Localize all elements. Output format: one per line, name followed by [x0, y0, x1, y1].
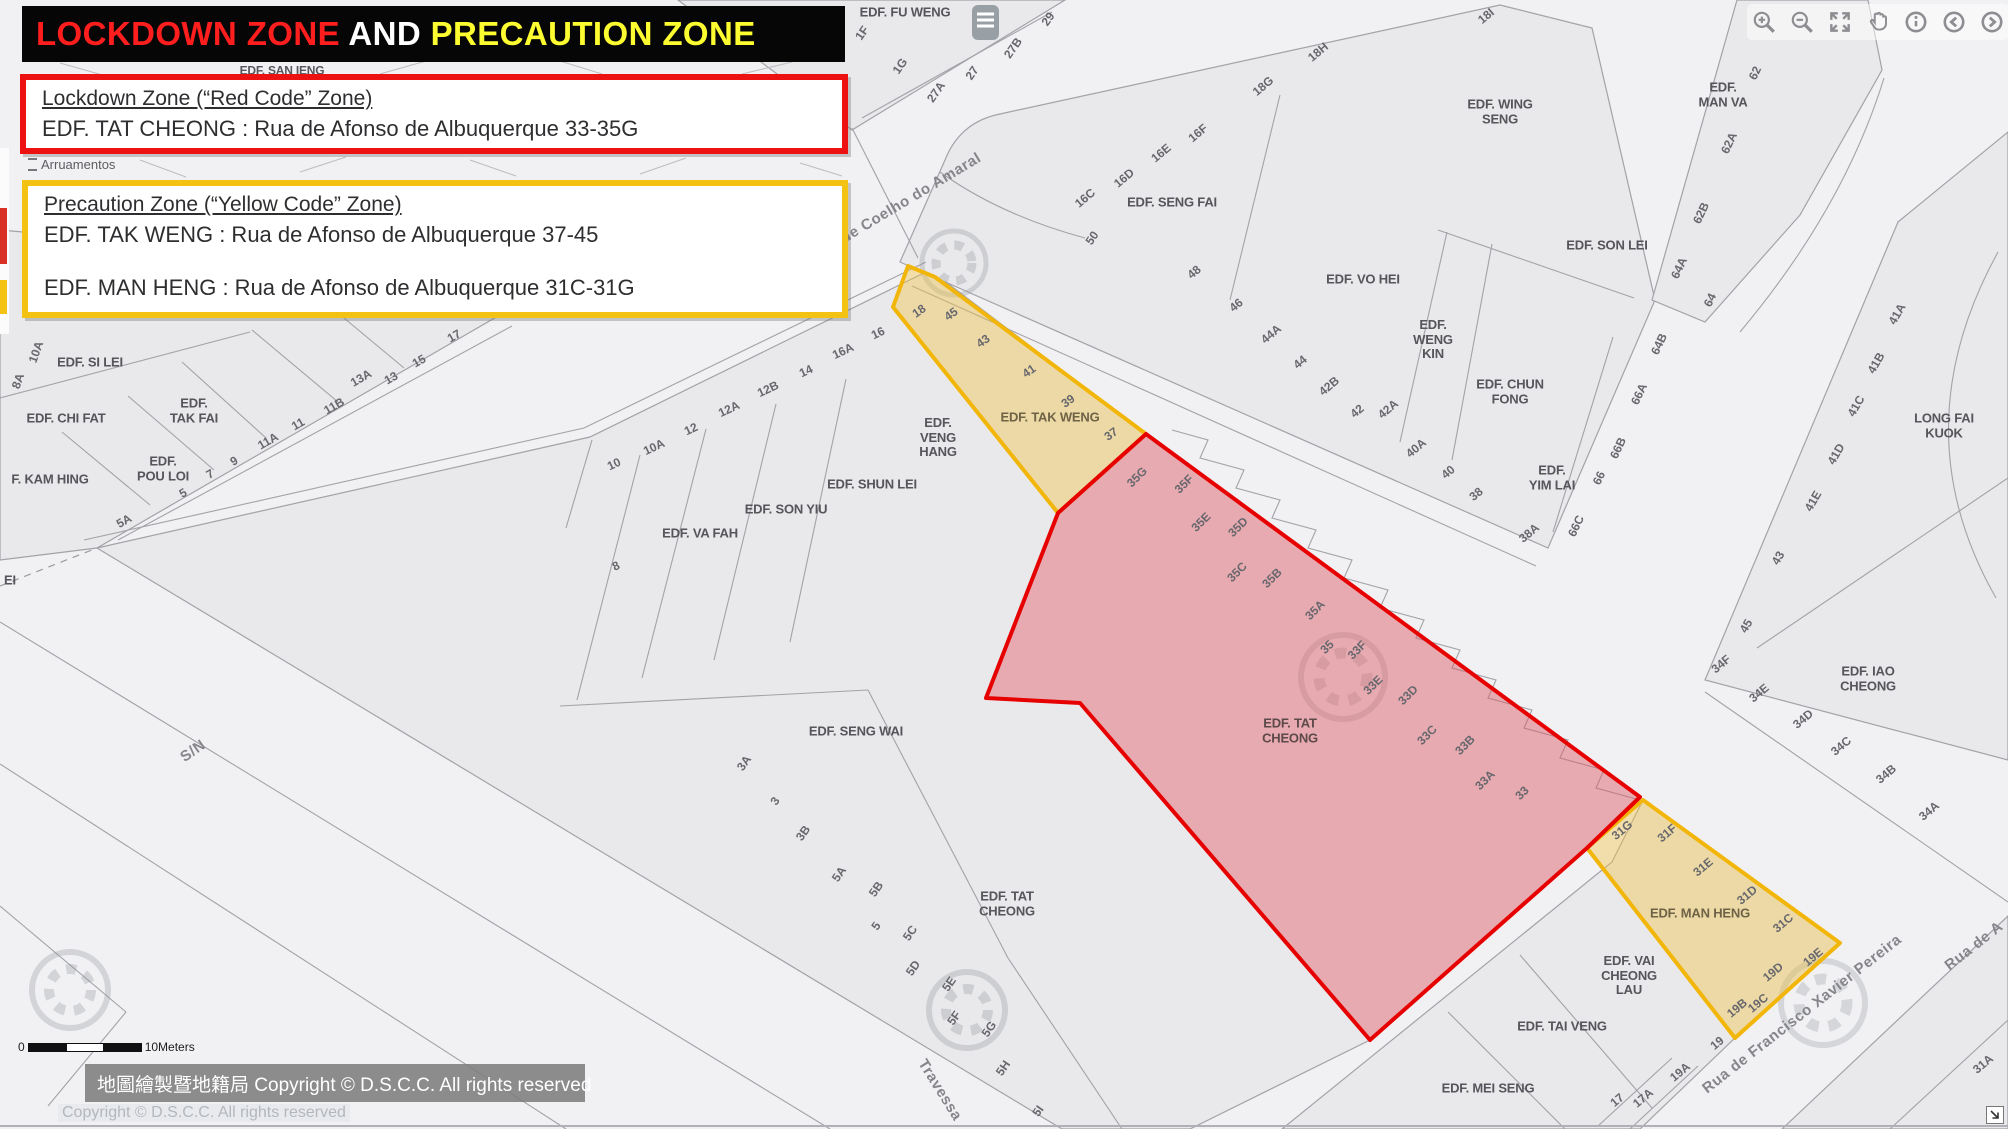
banner-segment-and: AND [340, 15, 431, 53]
next-extent-button[interactable] [1977, 7, 2007, 37]
banner-segment-lockdown: LOCKDOWN ZONE [36, 15, 340, 53]
scale-bar: 0 10Meters [18, 1040, 195, 1054]
arrow-right-circle-icon [1979, 9, 2005, 35]
legend-item-arruamentos: Arruamentos [28, 157, 115, 172]
resize-corner-button[interactable] [1986, 1106, 2004, 1124]
info-icon [1903, 9, 1929, 35]
zoom-out-button[interactable] [1787, 7, 1817, 37]
building-marker-icon [972, 5, 999, 40]
copyright-underlay: Copyright © D.S.C.C. All rights reserved [58, 1104, 350, 1122]
precaution-zone-title: Precaution Zone (“Yellow Code” Zone) [44, 193, 826, 217]
title-banner: LOCKDOWN ZONE AND PRECAUTION ZONE [22, 6, 845, 62]
zoom-out-icon [1789, 9, 1815, 35]
full-extent-button[interactable] [1825, 7, 1855, 37]
info-button[interactable] [1901, 7, 1931, 37]
zoom-in-button[interactable] [1749, 7, 1779, 37]
lockdown-zone-title: Lockdown Zone (“Red Code” Zone) [42, 87, 826, 111]
lockdown-zone-address: EDF. TAT CHEONG : Rua de Afonso de Albuq… [42, 116, 826, 142]
zoom-in-icon [1751, 9, 1777, 35]
precaution-zone-infobox: Precaution Zone (“Yellow Code” Zone) EDF… [22, 180, 848, 318]
pan-button[interactable] [1863, 7, 1893, 37]
copyright-overlay: 地圖繪製暨地籍局 Copyright © D.S.C.C. All rights… [85, 1064, 585, 1102]
lockdown-zone-infobox: Lockdown Zone (“Red Code” Zone) EDF. TAT… [20, 74, 848, 154]
precaution-zone-address-1: EDF. TAK WENG : Rua de Afonso de Albuque… [44, 222, 826, 248]
arrow-left-circle-icon [1941, 9, 1967, 35]
scale-bar-graphic [28, 1043, 142, 1052]
legend-lines-icon [28, 158, 37, 171]
previous-extent-button[interactable] [1939, 7, 1969, 37]
hand-icon [1865, 9, 1891, 35]
banner-segment-precaution: PRECAUTION ZONE [431, 15, 756, 53]
map-canvas[interactable] [0, 0, 2008, 1129]
scale-start-label: 0 [18, 1040, 25, 1054]
expand-arrows-icon [1827, 9, 1853, 35]
scale-end-label: 10Meters [145, 1040, 195, 1054]
legend-item-label: Arruamentos [41, 157, 115, 172]
map-toolbar [1747, 4, 2008, 40]
legend-red-chip [0, 208, 7, 264]
arrow-down-right-icon [1989, 1109, 2001, 1121]
precaution-zone-address-2: EDF. MAN HENG : Rua de Afonso de Albuque… [44, 275, 826, 301]
legend-yellow-chip [0, 280, 7, 314]
map-viewer: EDF. SAN IENGEDF. FU WENGEDF. WING SENGE… [0, 0, 2008, 1129]
